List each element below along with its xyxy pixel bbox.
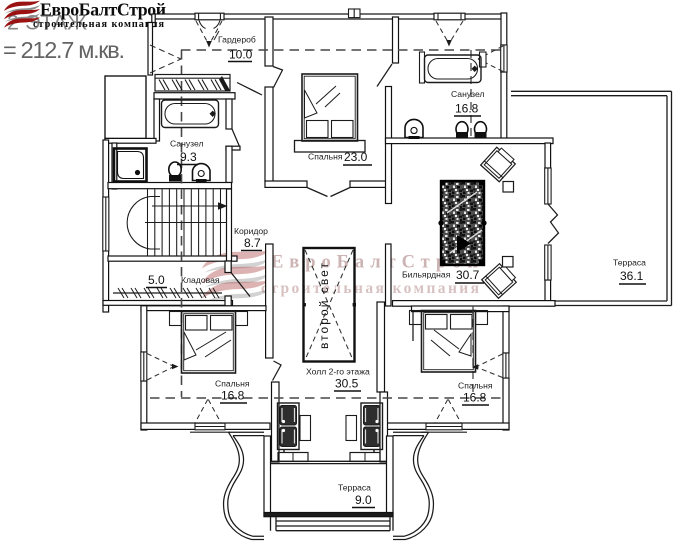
svg-text:Спальня: Спальня: [215, 379, 250, 389]
svg-text:Санузел: Санузел: [451, 89, 484, 99]
svg-text:Терраса: Терраса: [613, 258, 646, 268]
svg-text:16.8: 16.8: [463, 391, 487, 405]
svg-text:Спальня: Спальня: [458, 381, 493, 391]
svg-text:Холл 2-го этажа: Холл 2-го этажа: [306, 367, 370, 377]
svg-text:Терраса: Терраса: [338, 483, 371, 493]
svg-text:Бильярдная: Бильярдная: [402, 270, 451, 280]
svg-text:второй свет: второй свет: [317, 263, 331, 350]
svg-text:Кладовая: Кладовая: [181, 275, 220, 285]
svg-text:Спальня: Спальня: [308, 152, 343, 162]
svg-text:8.7: 8.7: [244, 236, 261, 250]
svg-text:Санузел: Санузел: [170, 139, 203, 149]
svg-text:ЕвроБалтСтрой: ЕвроБалтСтрой: [40, 0, 166, 20]
svg-text:16.8: 16.8: [221, 389, 245, 403]
svg-text:строительная компания: строительная компания: [33, 19, 164, 30]
svg-text:23.0: 23.0: [344, 150, 368, 164]
svg-text:10.0: 10.0: [229, 48, 253, 62]
svg-text:Коридор: Коридор: [234, 226, 268, 236]
svg-text:30.5: 30.5: [335, 377, 359, 391]
svg-text:9.3: 9.3: [180, 150, 197, 164]
svg-text:16.8: 16.8: [455, 102, 479, 116]
svg-text:30.7: 30.7: [456, 268, 480, 282]
svg-text:9.0: 9.0: [355, 493, 372, 507]
svg-text:Гардероб: Гардероб: [218, 35, 256, 45]
svg-text:36.1: 36.1: [620, 269, 644, 283]
svg-text:5.0: 5.0: [148, 273, 165, 287]
svg-text:= 212.7 м.кв.: = 212.7 м.кв.: [3, 37, 125, 63]
